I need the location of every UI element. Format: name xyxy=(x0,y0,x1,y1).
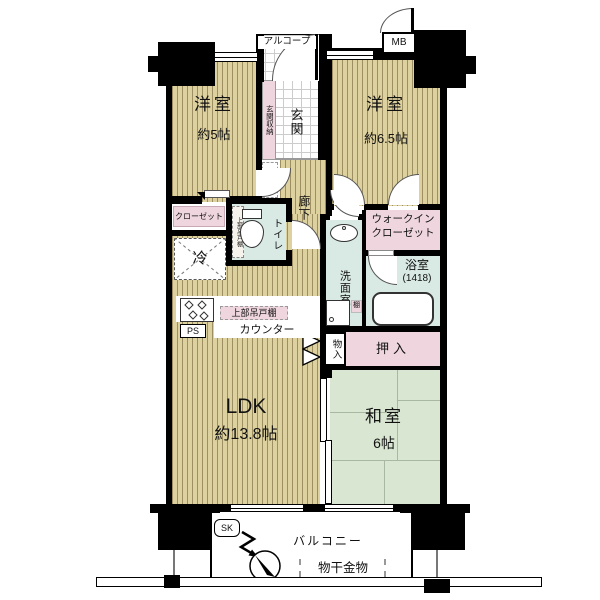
balcony-edge-line xyxy=(411,512,413,578)
genkan-storage-label: 玄関収納 xyxy=(262,84,276,156)
balcony-railing xyxy=(96,577,542,587)
wall-segment xyxy=(414,30,466,88)
shelf-label: 棚 xyxy=(351,300,362,313)
stove-burners-icon xyxy=(180,298,214,322)
wall-segment xyxy=(226,260,292,266)
meter-box-label: MB xyxy=(382,32,416,54)
wall-segment xyxy=(172,230,226,236)
wall-segment xyxy=(326,160,332,216)
wall-segment xyxy=(286,198,292,222)
sliding-window xyxy=(324,504,394,512)
sliding-door-panel xyxy=(320,378,327,442)
mb-door-arc xyxy=(380,8,413,33)
tatami-line xyxy=(397,400,440,401)
pipe-space-label: PS xyxy=(180,324,206,338)
wall-segment xyxy=(166,82,172,508)
west-room65-name: 洋室 xyxy=(332,94,440,116)
wall-segment xyxy=(286,250,292,266)
wall-segment xyxy=(394,250,440,256)
compass-icon xyxy=(232,526,290,584)
wall-segment xyxy=(418,204,440,210)
sliding-door-panel xyxy=(325,440,332,504)
sink-tap-icon xyxy=(342,226,346,230)
wall-segment xyxy=(413,513,465,550)
sliding-window xyxy=(214,52,258,62)
washitsu-name: 和室 xyxy=(346,406,422,428)
wall-segment xyxy=(326,214,330,220)
railing-bracket xyxy=(424,579,450,593)
closet-label: クローゼット xyxy=(173,206,225,227)
balcony-label: バルコニー xyxy=(286,534,370,550)
genkan-step-line xyxy=(274,158,318,160)
sliding-window xyxy=(326,50,374,60)
wall-segment xyxy=(158,512,210,550)
balcony-edge-line xyxy=(210,512,212,578)
wall-segment xyxy=(364,204,388,210)
railing-support xyxy=(436,550,438,579)
floor-plan: MB 上部吊戸棚 トイレ 洗面室 浴室 (1418) 棚 ウォークイン クローゼ… xyxy=(0,0,600,600)
railing-bracket xyxy=(164,575,180,588)
drying-fixture-tick xyxy=(299,559,301,577)
bathtub-icon xyxy=(372,292,434,326)
west-room65-size: 約6.5帖 xyxy=(332,130,440,148)
wall-segment xyxy=(320,366,440,370)
ldk-size: 約13.8帖 xyxy=(176,424,316,446)
sliding-window xyxy=(230,504,304,512)
drying-fixture-label: 物干金物 xyxy=(304,560,382,576)
washing-machine-drain-icon xyxy=(329,317,334,322)
washing-machine-icon xyxy=(326,300,350,326)
railing-support xyxy=(173,550,175,577)
closet-door-marker xyxy=(197,192,205,200)
kitchen-cabinet-label: 上部吊戸棚 xyxy=(220,306,288,320)
west-room5-name: 洋室 xyxy=(172,94,256,116)
tatami-line xyxy=(384,460,385,504)
oshiire-label: 押入 xyxy=(346,332,440,366)
wic-label-line1: ウォークイン xyxy=(366,212,440,226)
corridor-label: 廊下 xyxy=(293,184,313,232)
monoire-label: 物入 xyxy=(324,332,346,366)
wall-segment xyxy=(304,504,324,512)
wall-segment xyxy=(440,88,447,508)
ldk-name: LDK xyxy=(176,394,316,420)
bath-size-label: (1418) xyxy=(394,272,440,286)
wall-segment xyxy=(320,370,332,378)
drying-fixture-tick xyxy=(384,559,386,577)
closet-door-leaf xyxy=(204,190,230,198)
washitsu-size: 6帖 xyxy=(346,434,422,452)
counter-label: カウンター xyxy=(214,322,320,338)
west-room5-size: 約5帖 xyxy=(172,126,256,144)
wic-label-line2: クローゼット xyxy=(366,226,440,240)
mb-door-leaf xyxy=(411,8,414,32)
toilet-label: トイレ xyxy=(268,208,284,260)
wall-segment xyxy=(158,42,215,86)
wall-segment xyxy=(148,56,158,72)
fridge-label: 冷 xyxy=(174,238,226,280)
wall-segment xyxy=(466,56,476,74)
tatami-line xyxy=(330,460,440,461)
genkan-label: 玄関 xyxy=(284,92,306,152)
alcove-label: アルコープ xyxy=(258,36,316,49)
toilet-tank xyxy=(242,209,262,219)
